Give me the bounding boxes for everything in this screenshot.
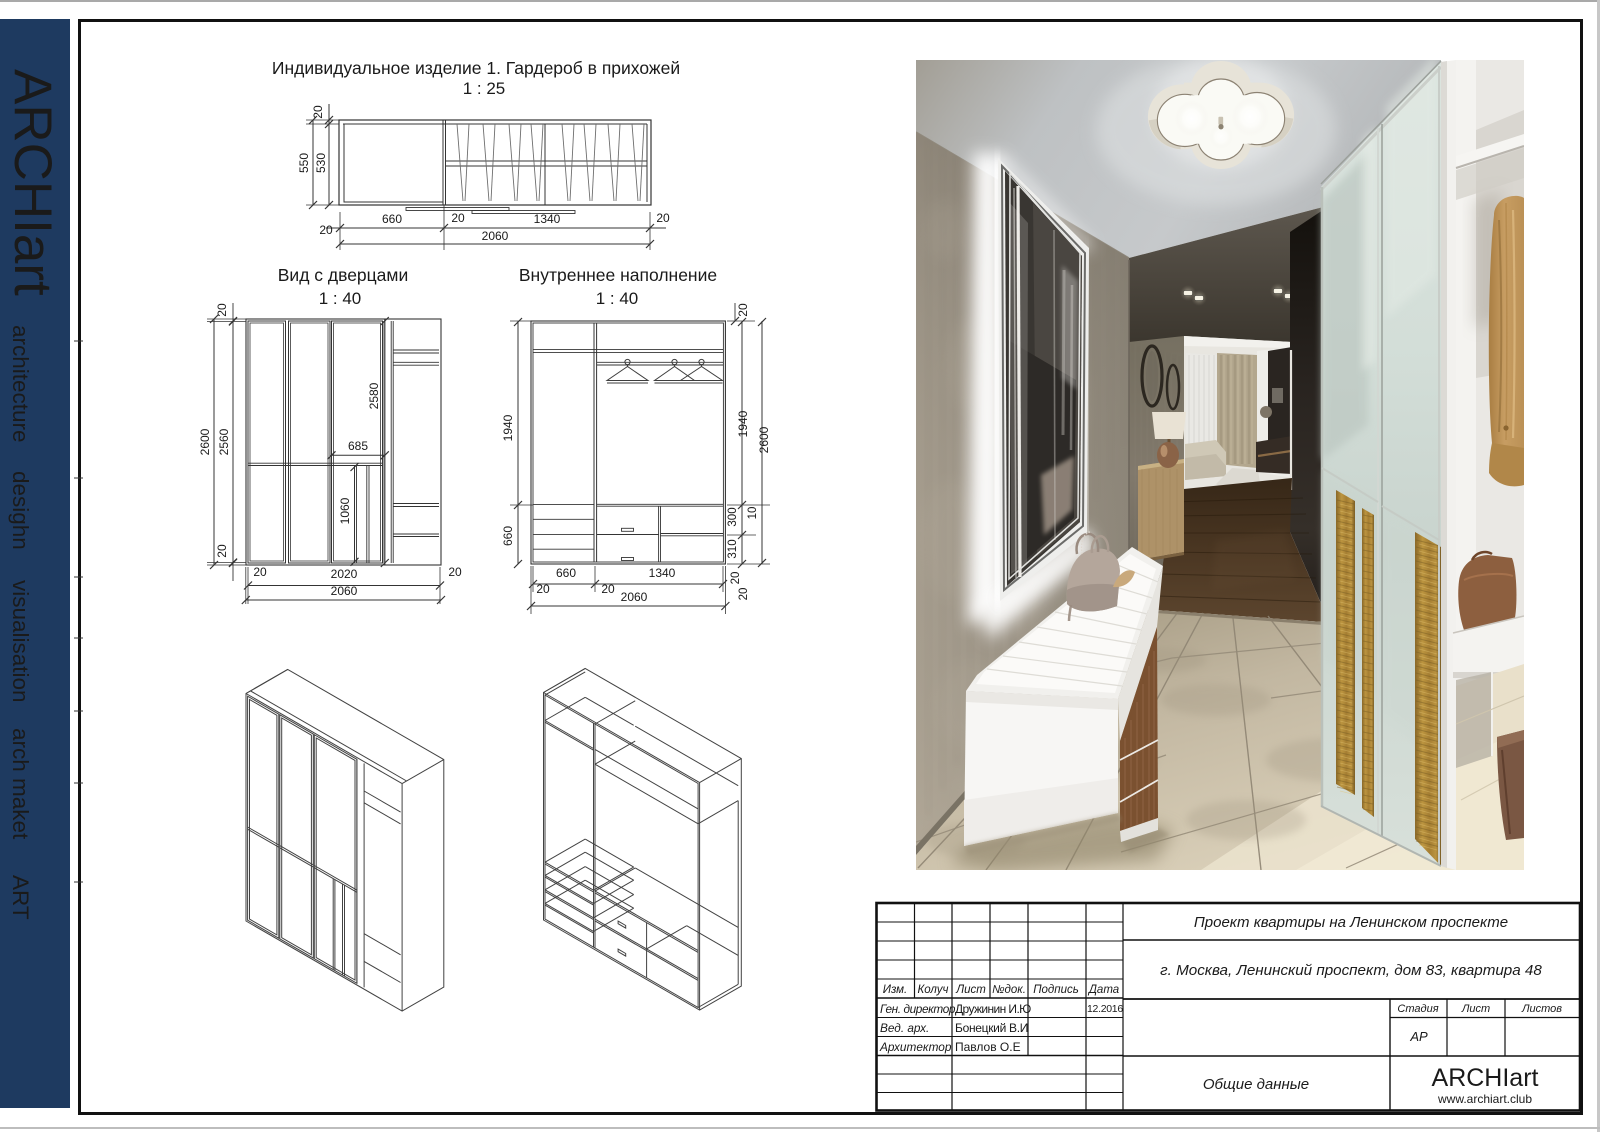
svg-text:20: 20	[601, 582, 615, 596]
svg-text:Лист: Лист	[955, 984, 986, 996]
svg-text:12.2016: 12.2016	[1087, 1003, 1123, 1015]
svg-text:20: 20	[215, 303, 229, 317]
svg-text:Проект квартиры на Ленинском п: Проект квартиры на Ленинском проспекте	[1194, 914, 1508, 931]
svg-text:20: 20	[451, 211, 465, 225]
svg-text:Бонецкий В.И: Бонецкий В.И	[955, 1021, 1028, 1035]
svg-text:20: 20	[215, 544, 229, 558]
svg-text:20: 20	[656, 211, 670, 225]
svg-text:АР: АР	[1409, 1029, 1428, 1044]
svg-text:Дружинин И.Ю: Дружинин И.Ю	[955, 1002, 1031, 1016]
svg-text:1340: 1340	[649, 566, 676, 580]
svg-text:530: 530	[314, 153, 328, 173]
svg-text:1060: 1060	[338, 497, 352, 524]
svg-text:1 : 40: 1 : 40	[596, 289, 639, 308]
svg-text:2600: 2600	[757, 426, 771, 453]
svg-text:20: 20	[311, 105, 325, 119]
svg-text:310: 310	[727, 539, 739, 558]
svg-text:20: 20	[536, 582, 550, 596]
svg-text:20: 20	[730, 572, 742, 585]
svg-text:2600: 2600	[198, 428, 212, 455]
svg-text:20: 20	[736, 303, 750, 317]
svg-text:550: 550	[297, 153, 311, 173]
svg-text:ARCHIart: ARCHIart	[1432, 1064, 1539, 1092]
svg-text:2560: 2560	[217, 428, 231, 455]
svg-text:Вед. арх.: Вед. арх.	[880, 1021, 929, 1035]
svg-text:Архитектор: Архитектор	[879, 1040, 952, 1054]
svg-text:1940: 1940	[736, 410, 750, 437]
svg-text:2580: 2580	[367, 382, 381, 409]
svg-text:20: 20	[253, 565, 267, 579]
svg-text:Внутреннее наполнение: Внутреннее наполнение	[519, 265, 717, 285]
svg-text:2020: 2020	[331, 567, 358, 581]
svg-text:№док.: №док.	[992, 984, 1026, 996]
svg-text:Ген. директор: Ген. директор	[880, 1002, 956, 1016]
svg-text:Изм.: Изм.	[883, 984, 908, 996]
svg-text:300: 300	[727, 507, 739, 526]
svg-text:Дата: Дата	[1087, 984, 1119, 996]
svg-text:1340: 1340	[534, 212, 561, 226]
svg-text:660: 660	[556, 566, 576, 580]
svg-text:660: 660	[382, 212, 402, 226]
svg-text:Павлов О.Е: Павлов О.Е	[955, 1040, 1021, 1054]
svg-text:685: 685	[348, 439, 368, 453]
svg-text:20: 20	[319, 223, 333, 237]
svg-text:Вид с дверцами: Вид с дверцами	[278, 265, 408, 285]
svg-text:г. Москва, Ленинский проспект,: г. Москва, Ленинский проспект, дом 83, к…	[1160, 962, 1542, 979]
svg-text:1940: 1940	[501, 414, 515, 441]
svg-text:www.archiart.club: www.archiart.club	[1437, 1092, 1532, 1106]
svg-text:10: 10	[747, 507, 759, 520]
svg-text:2060: 2060	[621, 590, 648, 604]
svg-text:Индивидуальное изделие 1. Гард: Индивидуальное изделие 1. Гардероб в при…	[272, 58, 680, 78]
svg-text:Колуч: Колуч	[918, 984, 949, 996]
svg-text:2060: 2060	[331, 584, 358, 598]
svg-text:Подпись: Подпись	[1033, 984, 1079, 996]
svg-text:20: 20	[448, 565, 462, 579]
svg-text:20: 20	[738, 588, 750, 601]
svg-text:1 : 25: 1 : 25	[463, 79, 506, 98]
svg-text:Листов: Листов	[1521, 1003, 1562, 1015]
svg-text:2060: 2060	[482, 229, 509, 243]
svg-text:660: 660	[501, 526, 515, 546]
svg-text:1 : 40: 1 : 40	[319, 289, 362, 308]
svg-text:Стадия: Стадия	[1397, 1003, 1438, 1015]
svg-text:Лист: Лист	[1461, 1003, 1490, 1015]
svg-text:Общие данные: Общие данные	[1203, 1076, 1309, 1093]
